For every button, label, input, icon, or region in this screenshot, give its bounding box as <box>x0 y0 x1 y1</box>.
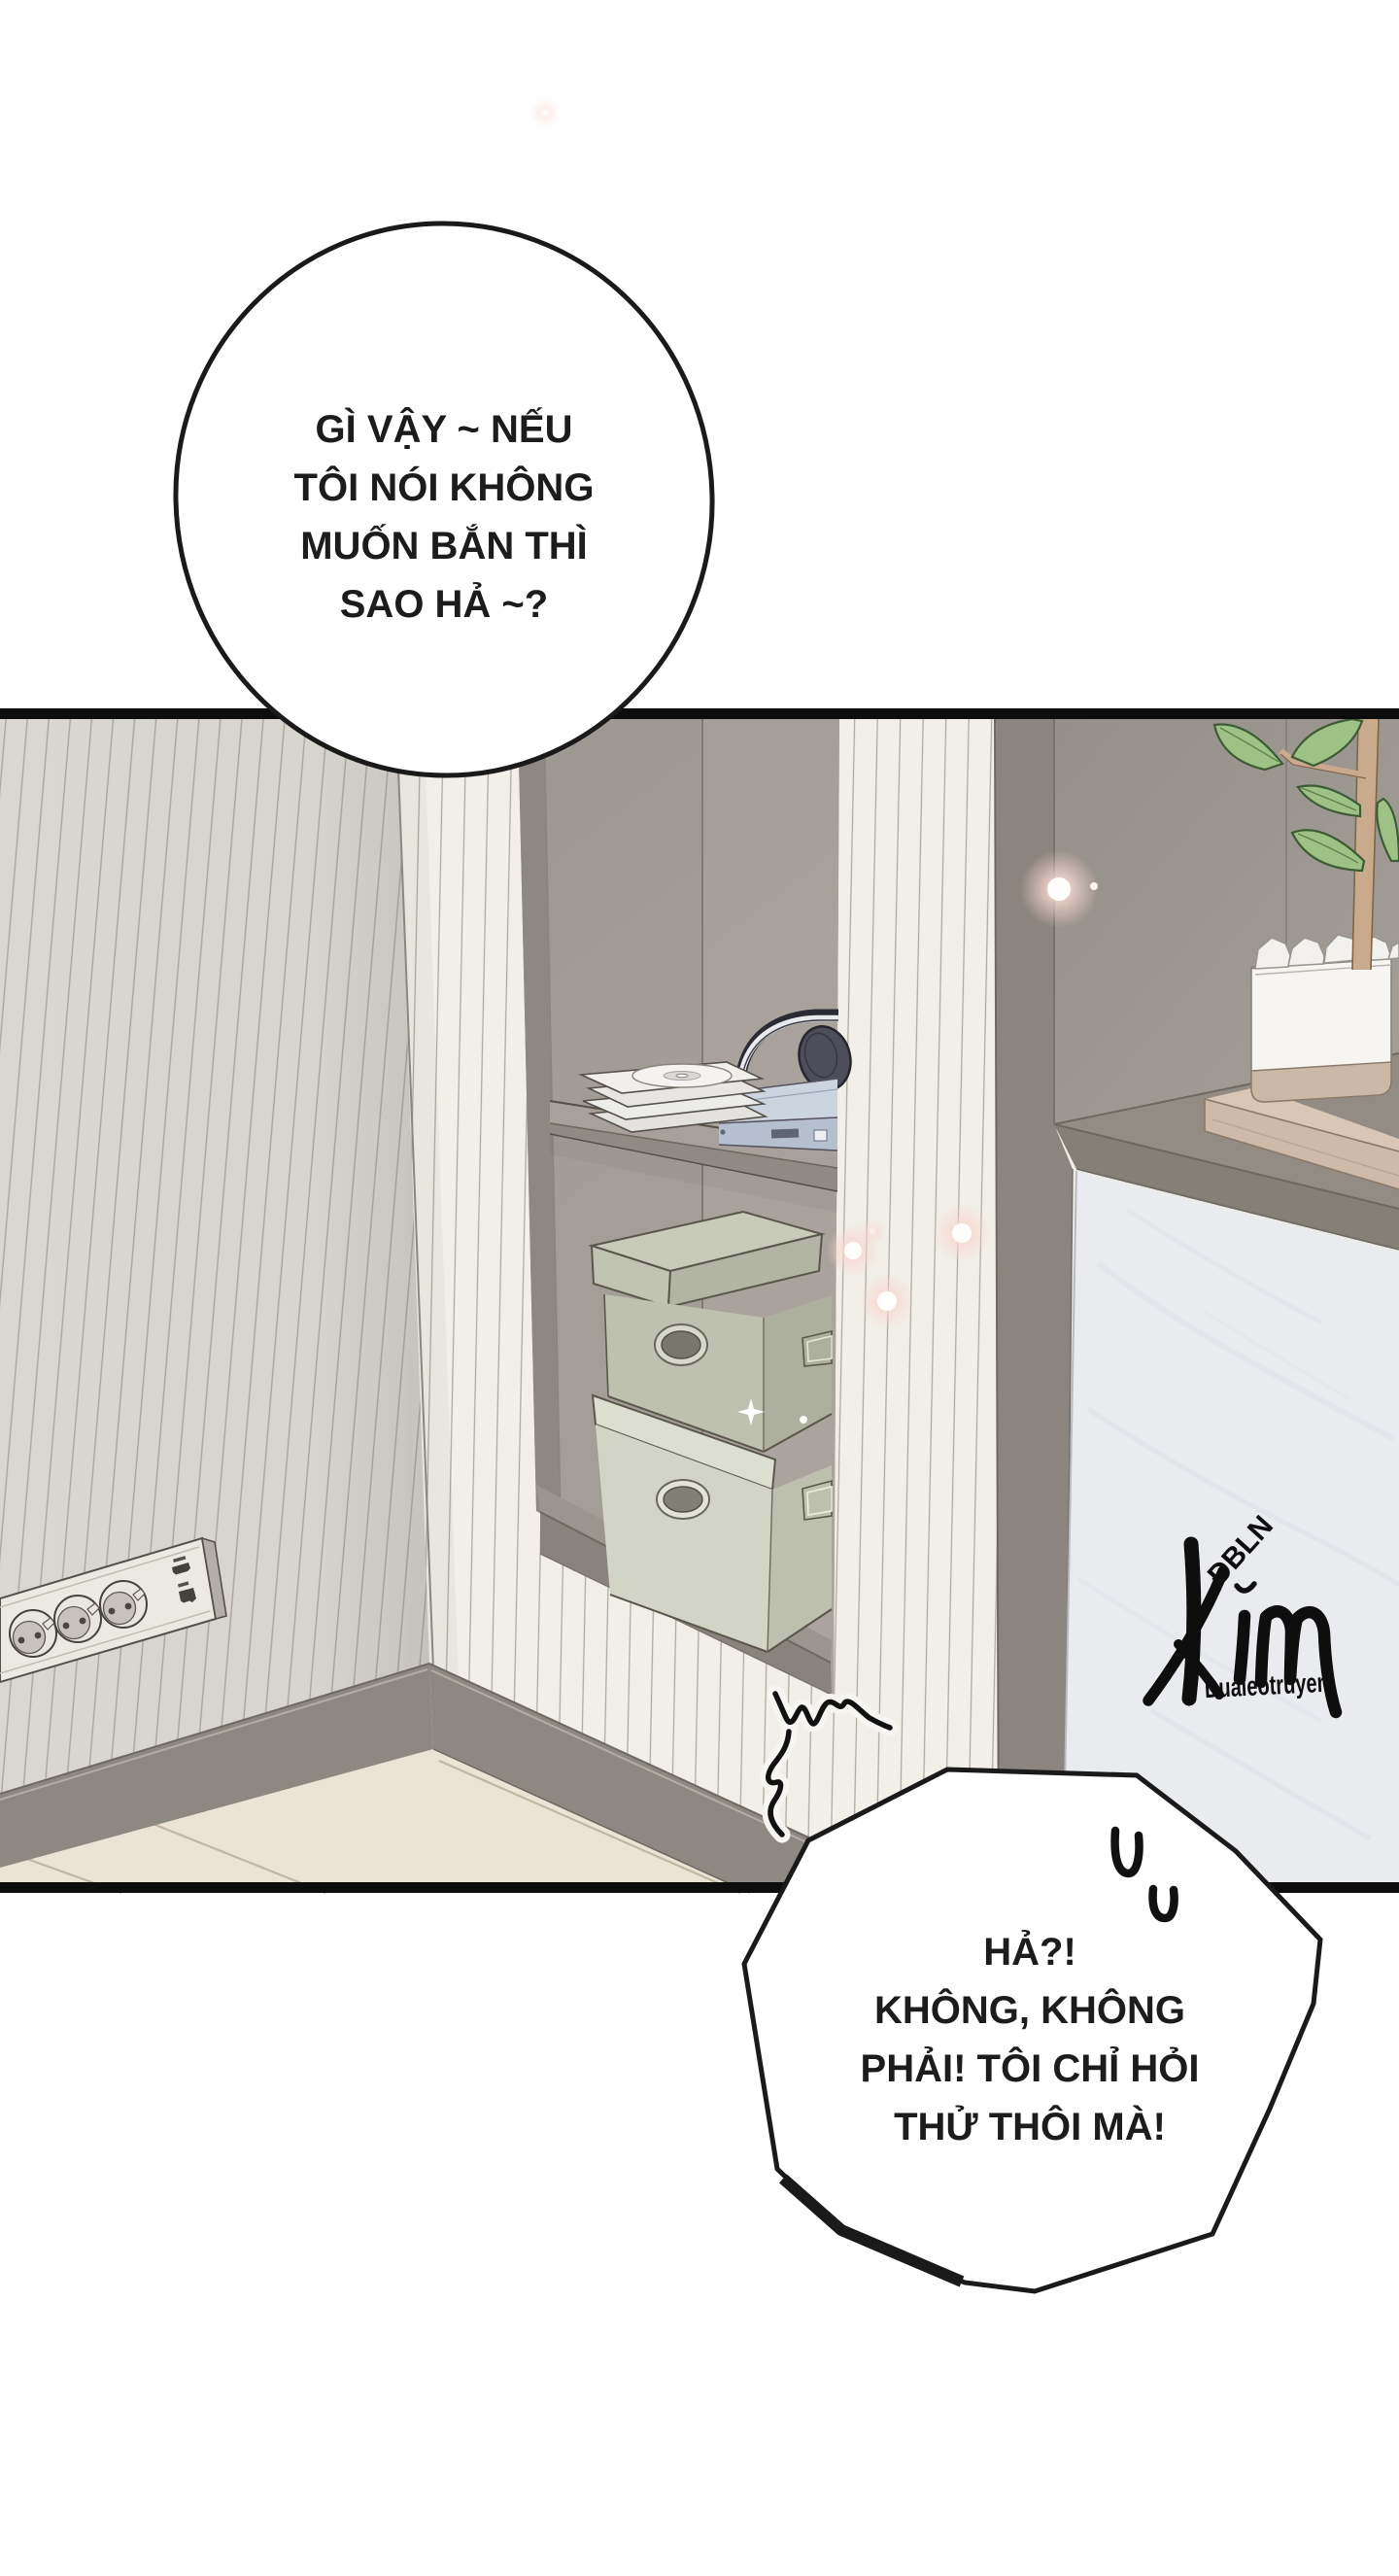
svg-text:KHÔNG, KHÔNG: KHÔNG, KHÔNG <box>874 1987 1185 2032</box>
svg-text:HẢ?!: HẢ?! <box>983 1929 1076 1974</box>
svg-text:SAO HẢ ~?: SAO HẢ ~? <box>340 581 548 626</box>
svg-text:THỬ THÔI MÀ!: THỬ THÔI MÀ! <box>894 2104 1166 2148</box>
svg-text:TÔI NÓI KHÔNG: TÔI NÓI KHÔNG <box>294 464 595 509</box>
svg-text:GÌ VẬY ~ NẾU: GÌ VẬY ~ NẾU <box>316 406 573 451</box>
svg-text:MUỐN BẮN THÌ: MUỐN BẮN THÌ <box>300 523 588 567</box>
svg-text:PHẢI! TÔI CHỈ HỎI: PHẢI! TÔI CHỈ HỎI <box>861 2045 1200 2090</box>
